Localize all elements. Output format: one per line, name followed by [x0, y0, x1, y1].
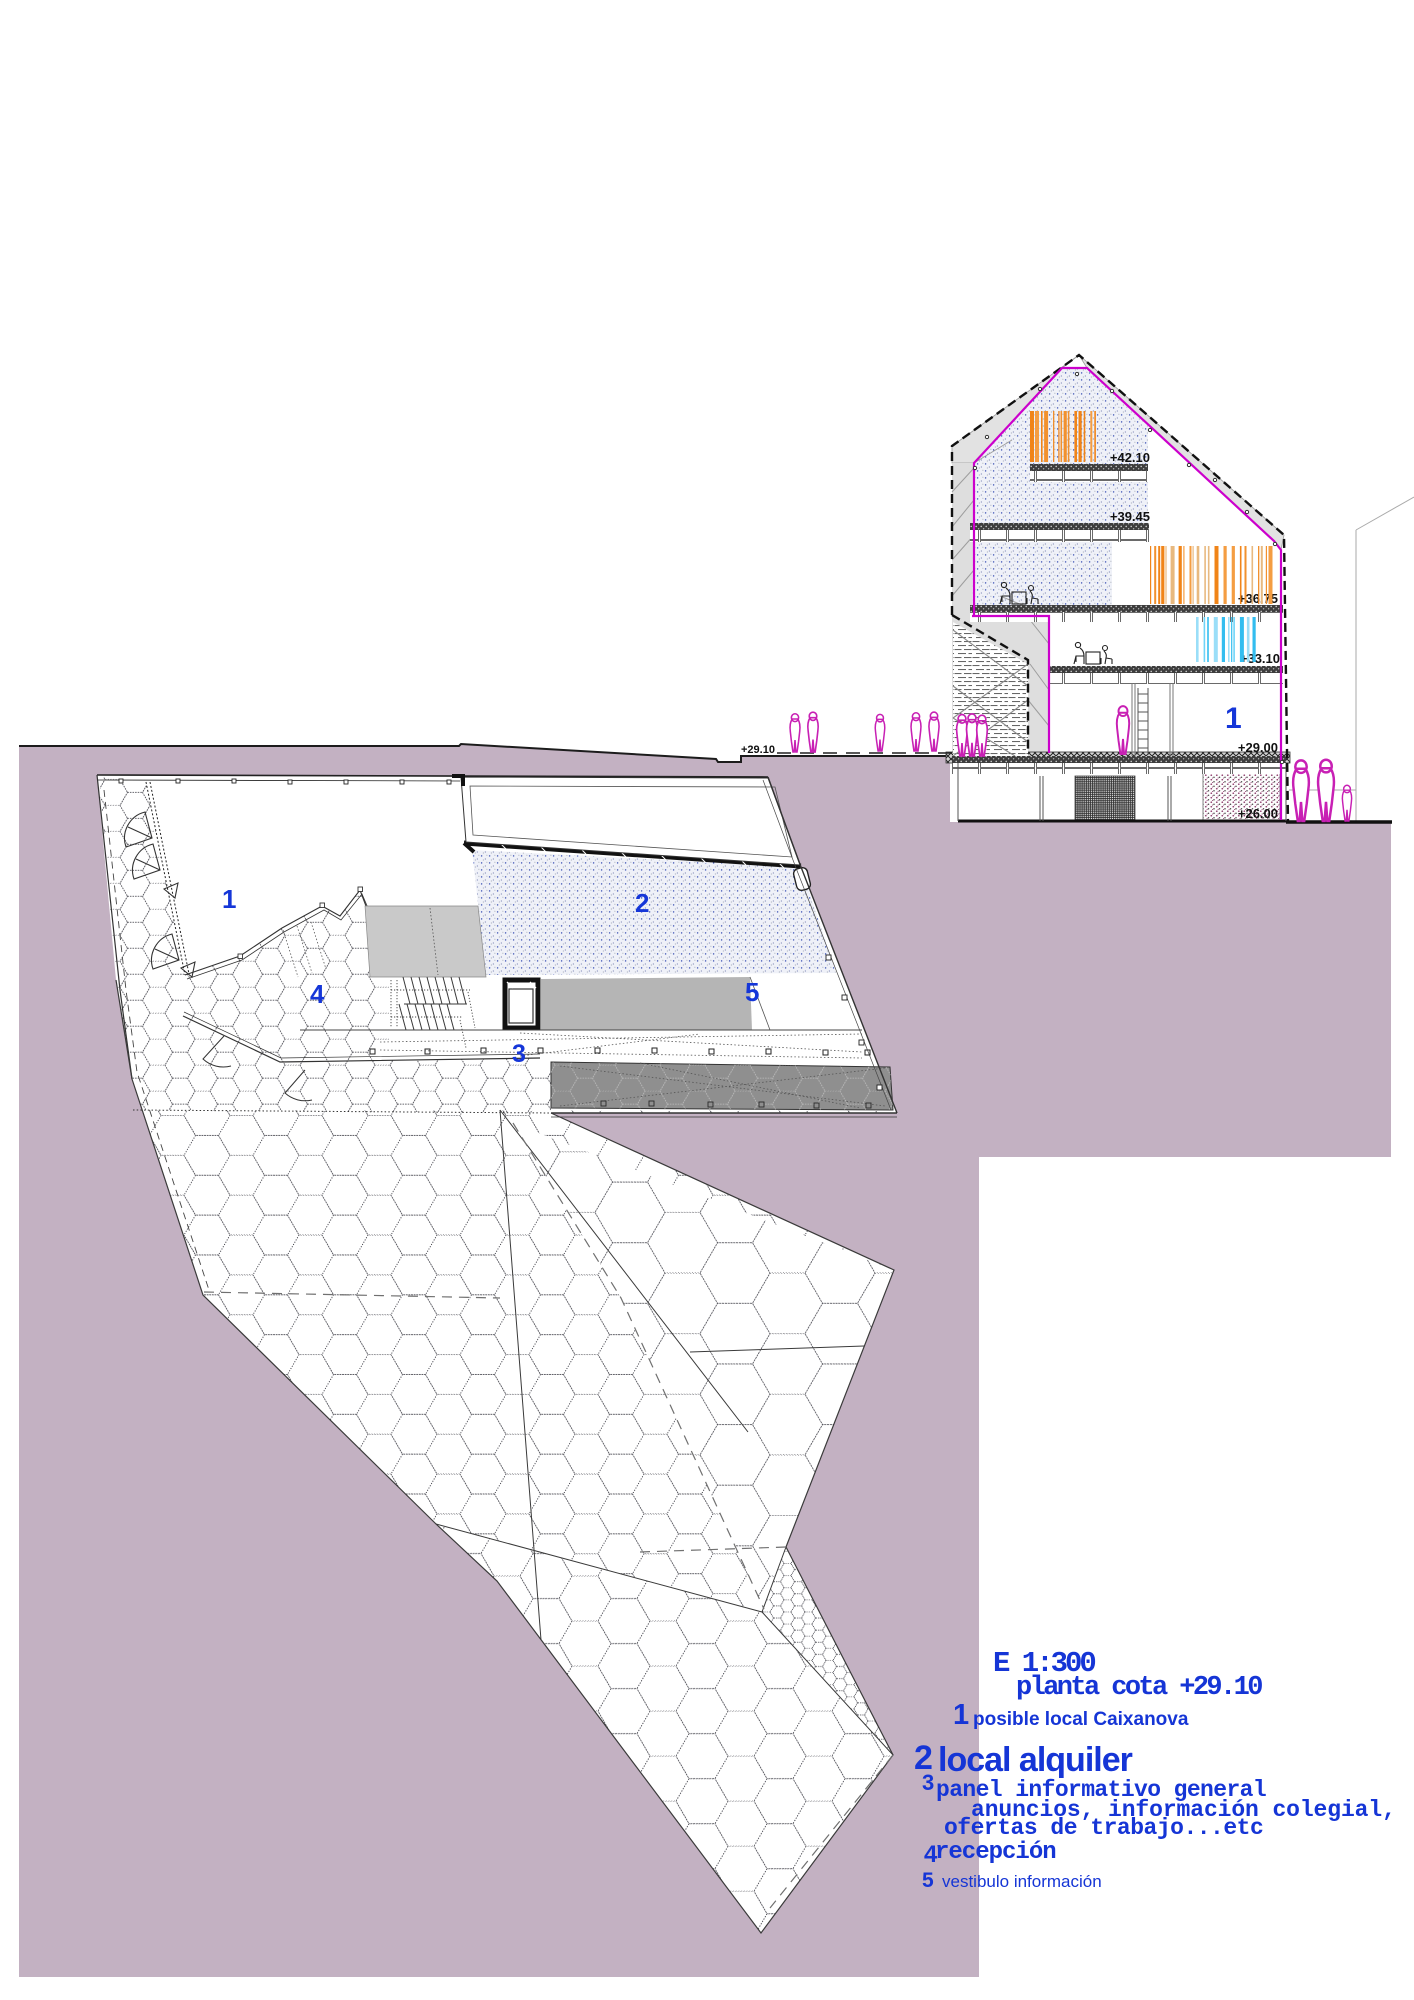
svg-text:vestibulo información: vestibulo información	[942, 1872, 1102, 1891]
svg-text:planta cota +29.10: planta cota +29.10	[1016, 1673, 1262, 1703]
svg-text:5: 5	[745, 977, 759, 1007]
svg-text:1: 1	[222, 884, 236, 914]
svg-text:2: 2	[635, 888, 649, 918]
svg-text:+26.00: +26.00	[1238, 806, 1278, 821]
svg-text:+39.45: +39.45	[1110, 509, 1150, 524]
svg-text:local alquiler: local alquiler	[938, 1741, 1133, 1779]
svg-text:5: 5	[922, 1869, 934, 1892]
svg-text:1: 1	[953, 1699, 969, 1731]
svg-text:+33.10: +33.10	[1240, 651, 1280, 666]
svg-text:1: 1	[1225, 702, 1242, 735]
svg-text:posible local Caixanova: posible local Caixanova	[973, 1709, 1189, 1730]
svg-text:4: 4	[310, 979, 325, 1009]
svg-text:+42.10: +42.10	[1110, 450, 1150, 465]
svg-text:3: 3	[922, 1770, 934, 1795]
svg-text:recepción: recepción	[935, 1839, 1056, 1866]
svg-text:3: 3	[512, 1040, 526, 1068]
svg-text:ofertas de trabajo...etc: ofertas de trabajo...etc	[944, 1815, 1263, 1841]
svg-text:+29.10: +29.10	[741, 744, 775, 756]
svg-text:+29.00: +29.00	[1238, 740, 1278, 755]
